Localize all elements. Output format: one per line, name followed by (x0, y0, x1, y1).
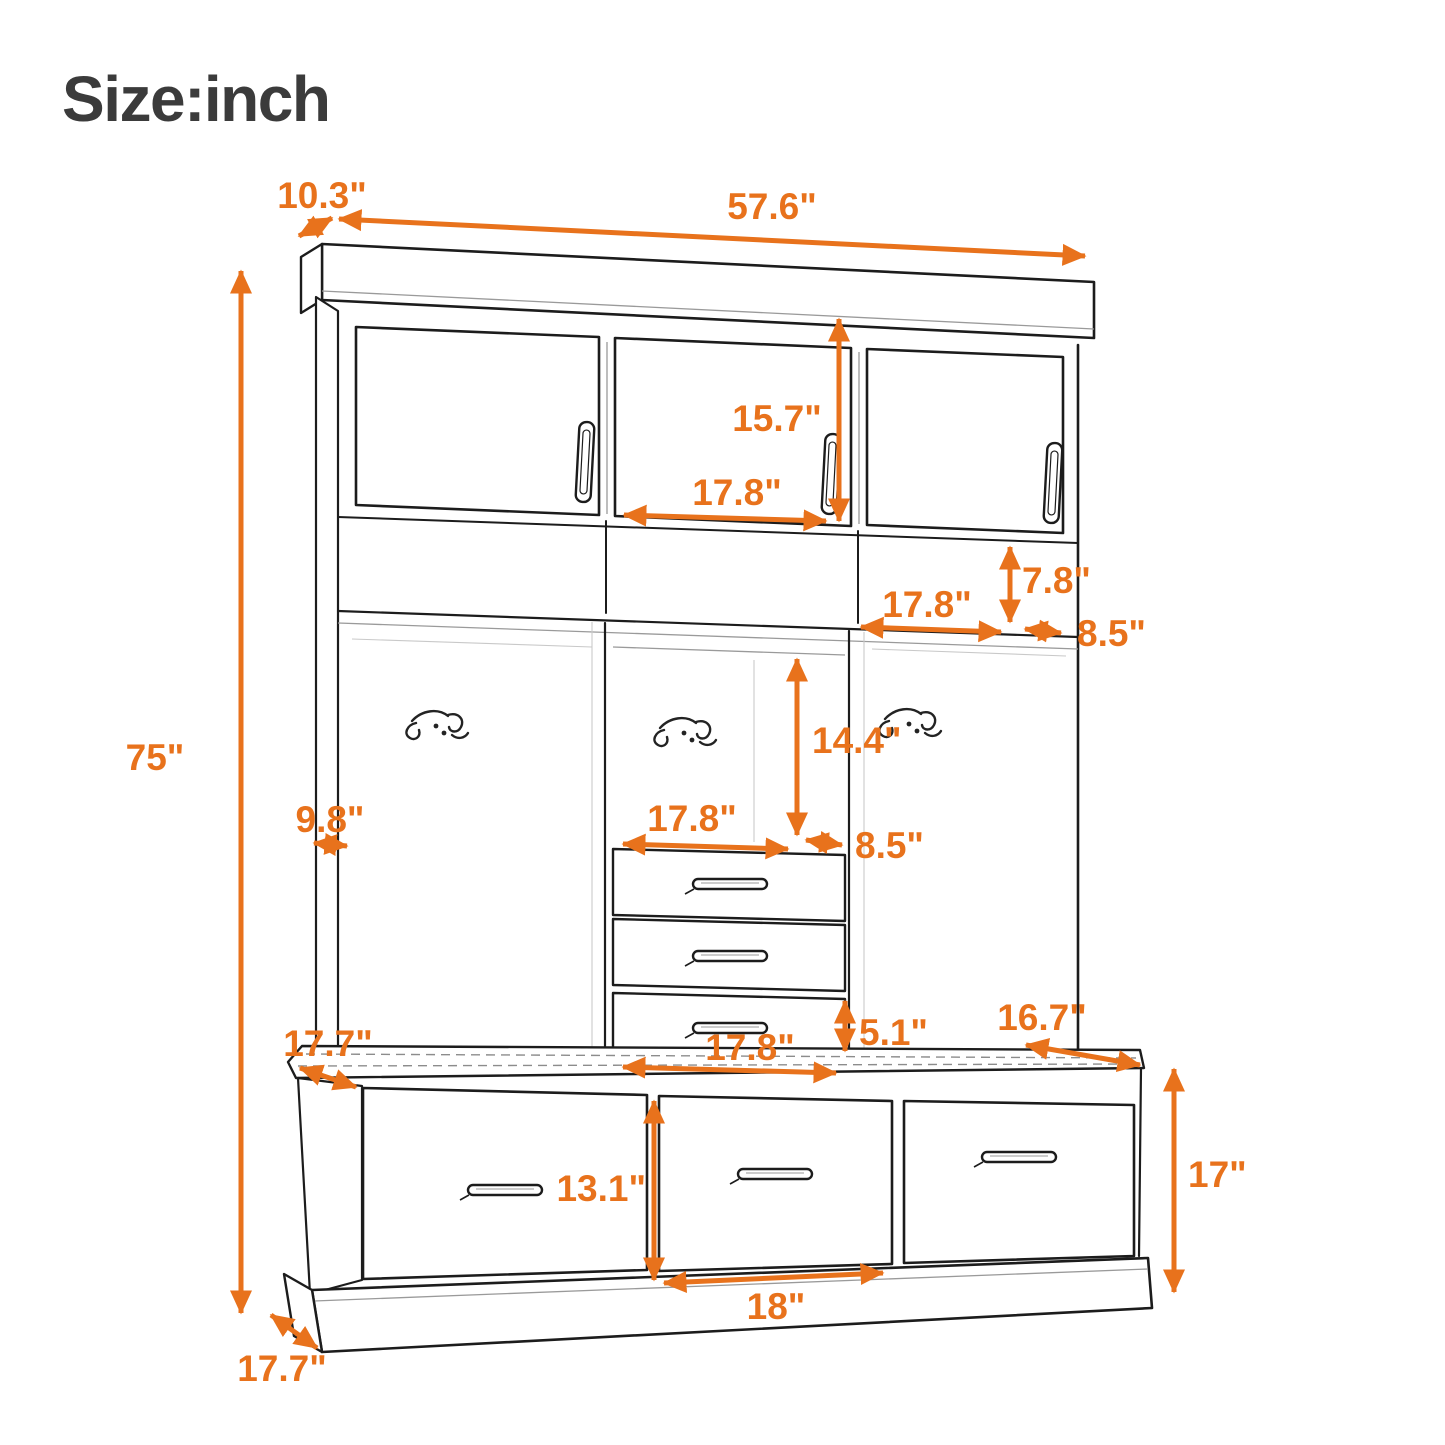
dimension-label: 75" (126, 737, 185, 778)
dimension-bench-height: 17" (1174, 1069, 1247, 1292)
cabinet-door-left (356, 327, 599, 515)
dimension-label: 8.5" (855, 825, 924, 866)
dimension-label: 8.5" (1077, 613, 1146, 654)
dimension-diagram-page: Size:inch (0, 0, 1445, 1445)
bench-drawer-middle (659, 1096, 892, 1271)
dimension-label: 17.7" (283, 1023, 373, 1064)
dimension-label: 15.7" (732, 398, 822, 439)
dimension-label: 9.8" (296, 799, 365, 840)
dimension-label: 5.1" (859, 1012, 928, 1053)
dimension-label: 57.6" (727, 186, 817, 227)
cabinet-door-right (867, 349, 1063, 533)
dimension-label: 17.8" (882, 584, 972, 625)
dimension-label: 16.7" (997, 997, 1087, 1038)
dimension-label: 7.8" (1022, 560, 1091, 601)
dimension-label: 18" (747, 1286, 806, 1327)
dimension-label: 17.7" (237, 1348, 327, 1389)
dimension-open-compartment-width: 17.8" (623, 798, 788, 849)
bench-left-side (298, 1078, 362, 1294)
dimension-top-depth: 10.3" (277, 175, 367, 236)
dimension-overall-width: 57.6" (339, 186, 1085, 256)
dimension-small-drawer-height: 5.1" (845, 1001, 928, 1053)
furniture-dimension-drawing: 10.3" 57.6" 75" 15.7" 17.8" 7.8" 17.8" (0, 0, 1445, 1445)
upper-cabinet (316, 297, 1078, 1068)
bench-drawer-right (904, 1101, 1134, 1263)
dimension-label: 17" (1188, 1154, 1247, 1195)
dimension-overall-height: 75" (126, 271, 241, 1313)
dimension-label: 17.8" (647, 798, 737, 839)
dimension-open-shelf-width: 17.8" (861, 584, 1001, 632)
dimension-label: 17.8" (705, 1027, 795, 1068)
bench (284, 1046, 1152, 1352)
dimension-label: 10.3" (277, 175, 367, 216)
dimension-label: 14.4" (812, 720, 902, 761)
dimension-label: 17.8" (692, 472, 782, 513)
dimension-left-side-depth: 9.8" (296, 799, 365, 846)
crown-molding (301, 244, 1094, 338)
dimension-label: 13.1" (556, 1168, 646, 1209)
